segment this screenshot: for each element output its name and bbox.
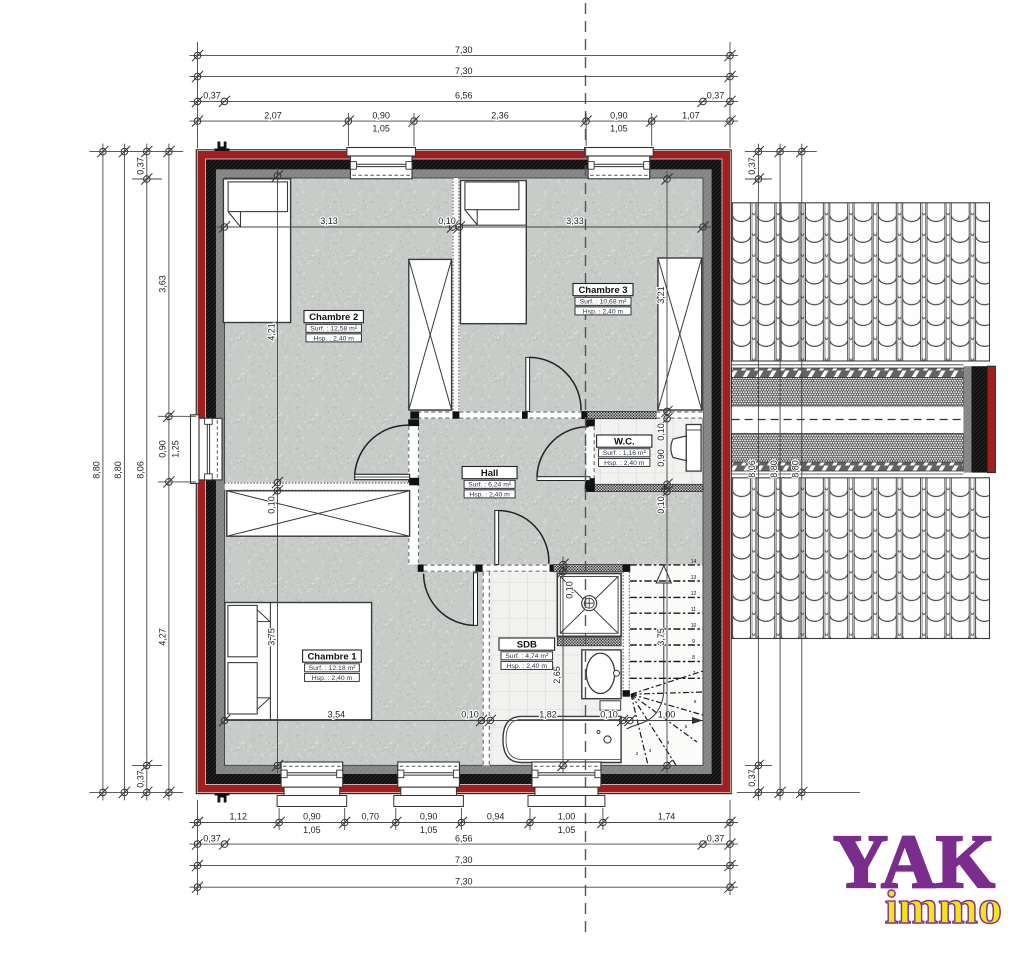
- svg-text:0,94: 0,94: [487, 812, 505, 822]
- svg-text:3,54: 3,54: [328, 710, 346, 720]
- svg-text:Chambre 1: Chambre 1: [307, 651, 357, 662]
- svg-text:0,37: 0,37: [203, 91, 221, 101]
- svg-text:0,70: 0,70: [362, 812, 380, 822]
- svg-text:3: 3: [649, 748, 652, 753]
- svg-text:7,30: 7,30: [455, 45, 473, 55]
- svg-text:7,30: 7,30: [455, 66, 473, 76]
- svg-text:8: 8: [692, 655, 695, 661]
- svg-text:7: 7: [693, 670, 696, 675]
- svg-text:1,00: 1,00: [658, 710, 676, 720]
- svg-text:0,90: 0,90: [610, 110, 628, 120]
- svg-text:0,10: 0,10: [656, 496, 666, 514]
- svg-text:9: 9: [692, 639, 695, 645]
- svg-text:0,90: 0,90: [303, 812, 321, 822]
- svg-text:1,00: 1,00: [558, 812, 576, 822]
- svg-text:2,65: 2,65: [552, 666, 562, 684]
- svg-text:3,75: 3,75: [656, 628, 666, 646]
- svg-text:1,05: 1,05: [420, 825, 438, 835]
- svg-text:Hsp. : 2,40 m: Hsp. : 2,40 m: [507, 663, 548, 670]
- svg-text:0,37: 0,37: [747, 157, 757, 175]
- svg-text:Chambre 2: Chambre 2: [309, 312, 358, 323]
- svg-text:0,37: 0,37: [203, 833, 221, 843]
- svg-text:1,07: 1,07: [682, 110, 700, 120]
- svg-text:1,12: 1,12: [230, 812, 248, 822]
- svg-text:7,30: 7,30: [455, 876, 473, 886]
- svg-text:0,37: 0,37: [707, 833, 725, 843]
- svg-text:5: 5: [685, 724, 688, 729]
- svg-text:Hsp. : 2,40 m: Hsp. : 2,40 m: [312, 675, 353, 682]
- svg-text:1,05: 1,05: [303, 825, 321, 835]
- svg-text:1,05: 1,05: [372, 124, 390, 134]
- svg-text:2,07: 2,07: [264, 110, 282, 120]
- svg-text:0,10: 0,10: [656, 423, 666, 441]
- svg-text:3,75: 3,75: [266, 628, 276, 646]
- svg-text:3,13: 3,13: [320, 216, 338, 226]
- svg-text:0,90: 0,90: [420, 812, 438, 822]
- svg-text:4,21: 4,21: [266, 323, 276, 341]
- svg-text:14: 14: [691, 559, 697, 565]
- svg-text:8,80: 8,80: [769, 460, 779, 478]
- svg-text:0,10: 0,10: [266, 496, 276, 514]
- svg-text:0,10: 0,10: [565, 581, 575, 599]
- svg-text:8,80: 8,80: [92, 461, 102, 479]
- svg-text:8,06: 8,06: [747, 460, 757, 478]
- svg-text:Surf. : 10,68 m²: Surf. : 10,68 m²: [580, 299, 628, 306]
- svg-text:Surf. : 4,74 m²: Surf. : 4,74 m²: [505, 653, 549, 660]
- svg-text:2,36: 2,36: [491, 110, 509, 120]
- svg-text:1,82: 1,82: [539, 710, 557, 720]
- svg-text:8,06: 8,06: [136, 461, 146, 479]
- svg-text:Surf. : 6,24 m²: Surf. : 6,24 m²: [468, 482, 512, 489]
- svg-text:0,90: 0,90: [158, 440, 168, 458]
- svg-text:1,05: 1,05: [610, 124, 628, 134]
- svg-text:8,80: 8,80: [113, 461, 123, 479]
- svg-text:6: 6: [694, 699, 697, 704]
- svg-text:Hall: Hall: [481, 468, 498, 479]
- svg-text:0,90: 0,90: [372, 110, 390, 120]
- svg-text:8,80: 8,80: [791, 460, 801, 478]
- svg-text:0,10: 0,10: [600, 710, 618, 720]
- svg-text:Surf. : 12,58 m²: Surf. : 12,58 m²: [310, 326, 358, 333]
- svg-text:1,05: 1,05: [558, 825, 576, 835]
- svg-text:2: 2: [636, 751, 639, 756]
- svg-text:0,90: 0,90: [656, 449, 666, 467]
- svg-text:11: 11: [691, 607, 696, 613]
- svg-text:Chambre 3: Chambre 3: [578, 285, 627, 296]
- svg-text:13: 13: [691, 575, 697, 581]
- svg-text:7,30: 7,30: [455, 855, 473, 865]
- svg-text:1,25: 1,25: [170, 440, 180, 458]
- svg-text:10: 10: [691, 623, 697, 629]
- svg-text:Hsp. : 2,40 m: Hsp. : 2,40 m: [583, 308, 624, 315]
- svg-text:Hsp. : 2,40 m: Hsp. : 2,40 m: [604, 460, 645, 467]
- svg-text:W.C.: W.C.: [614, 436, 635, 447]
- svg-text:0,37: 0,37: [747, 769, 757, 787]
- svg-text:Hsp. : 2,40 m: Hsp. : 2,40 m: [469, 491, 510, 498]
- svg-text:6,56: 6,56: [455, 91, 473, 101]
- svg-text:Surf. : 12,18 m²: Surf. : 12,18 m²: [309, 665, 357, 672]
- svg-text:0,10: 0,10: [438, 216, 456, 226]
- svg-text:3,33: 3,33: [566, 216, 584, 226]
- svg-text:3,63: 3,63: [158, 275, 168, 293]
- svg-text:Hsp. : 2,40 m: Hsp. : 2,40 m: [313, 335, 354, 342]
- svg-text:Surf. : 1,16 m²: Surf. : 1,16 m²: [603, 450, 647, 457]
- svg-text:0,10: 0,10: [461, 710, 479, 720]
- svg-text:SDB: SDB: [517, 639, 537, 650]
- svg-text:0,37: 0,37: [136, 770, 146, 788]
- svg-text:3,21: 3,21: [656, 286, 666, 304]
- svg-text:6,56: 6,56: [455, 833, 473, 843]
- svg-text:4,27: 4,27: [158, 628, 168, 646]
- svg-text:12: 12: [691, 591, 697, 597]
- svg-text:0,37: 0,37: [136, 157, 146, 175]
- svg-text:0,37: 0,37: [707, 91, 725, 101]
- svg-text:1,74: 1,74: [658, 812, 676, 822]
